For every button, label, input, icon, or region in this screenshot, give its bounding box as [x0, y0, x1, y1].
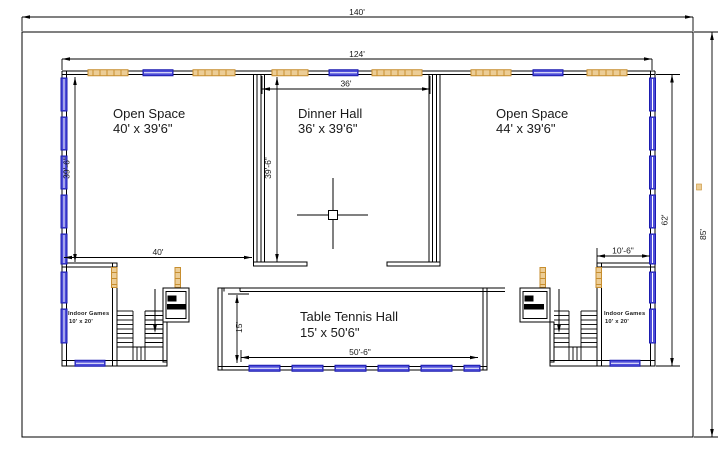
dimension-lines [22, 15, 718, 437]
center-crosshair [297, 178, 368, 249]
dim-inner-height: 62' [660, 214, 670, 225]
dim-dinner-height: 39'-6" [263, 157, 273, 179]
label-open-space-right-size: 44' x 39'6" [496, 121, 556, 136]
label-dinner-hall-name: Dinner Hall [298, 106, 362, 121]
outer-border [22, 32, 693, 437]
dim-indoor-right-width: 10'-6" [612, 246, 634, 256]
dim-overall-width: 140' [349, 7, 365, 17]
floor-plan-svg: 140' 124' 36' 40' 50'-6" 10'-6" 39'-6" 3… [0, 0, 723, 456]
floor-plan-canvas: 140' 124' 36' 40' 50'-6" 10'-6" 39'-6" 3… [0, 0, 723, 456]
dim-tt-width: 50'-6" [349, 347, 371, 357]
dim-dinner-width: 36' [340, 79, 351, 89]
label-table-tennis-name: Table Tennis Hall [300, 309, 398, 324]
label-open-space-left-size: 40' x 39'6" [113, 121, 173, 136]
text-labels: 140' 124' 36' 40' 50'-6" 10'-6" 39'-6" 3… [62, 7, 709, 357]
dim-open-left-width: 40' [152, 247, 163, 257]
label-open-space-left-name: Open Space [113, 106, 185, 121]
label-table-tennis-size: 15' x 50'6" [300, 325, 360, 340]
label-dinner-hall-size: 36' x 39'6" [298, 121, 358, 136]
door-segments [112, 184, 702, 288]
dim-tt-height: 15' [234, 322, 244, 333]
label-indoor-left-size: 10' x 20' [69, 319, 93, 325]
label-open-space-right-name: Open Space [496, 106, 568, 121]
label-indoor-left-name: Indoor Games [68, 311, 109, 317]
label-indoor-right-size: 10' x 20' [605, 319, 629, 325]
dim-overall-height: 85' [698, 229, 708, 240]
label-indoor-right-name: Indoor Games [604, 311, 645, 317]
dim-open-left-height: 39'-6" [62, 157, 72, 179]
dim-inner-width: 124' [349, 49, 365, 59]
